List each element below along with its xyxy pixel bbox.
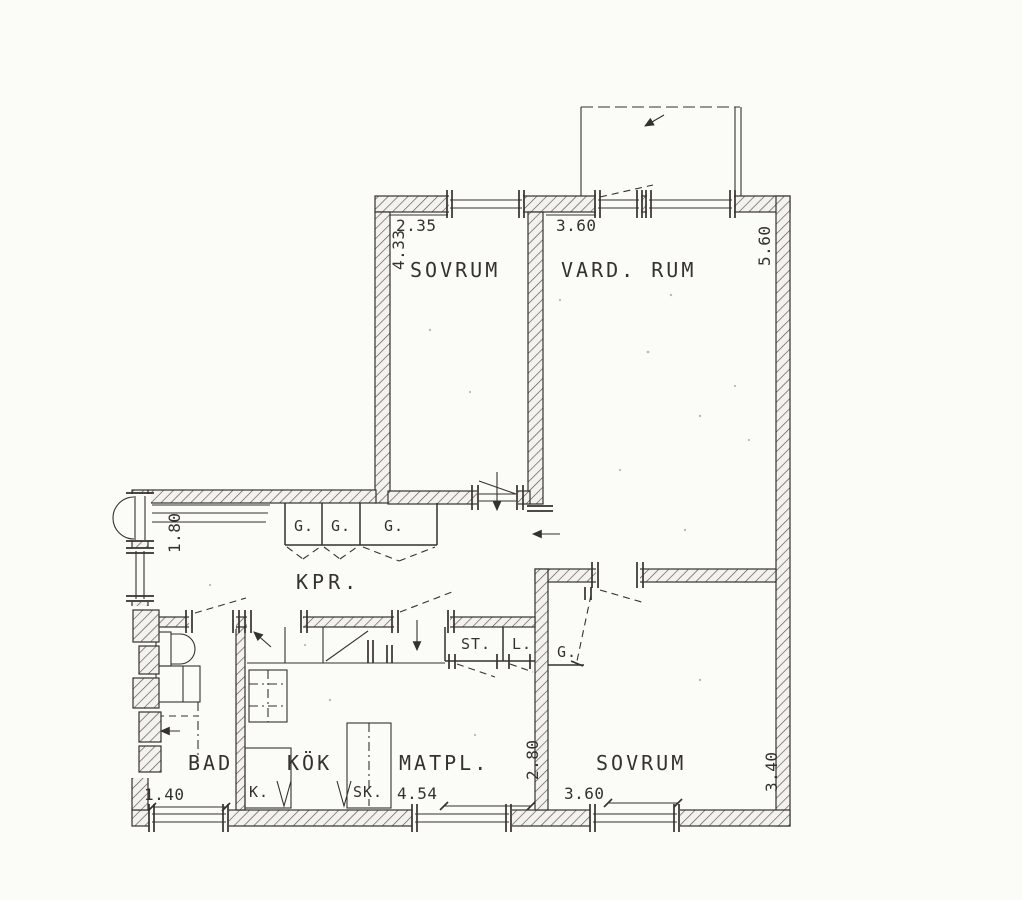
cleaning-closet-label: ST.	[461, 635, 491, 653]
wall-bedroom1-left	[375, 212, 390, 503]
dim-vardagsrum-depth: 5.60	[755, 225, 774, 266]
shaft-box	[139, 746, 161, 772]
dim-matplats-depth: 2.80	[523, 739, 542, 780]
wall-livingroom-bedroom2	[535, 569, 776, 582]
room-label-sovrum-lower: SOVRUM	[596, 751, 686, 775]
gap-door-bedroom2	[596, 567, 640, 584]
gap-window-bedroom2	[590, 809, 680, 827]
closet-label: G.	[294, 517, 314, 535]
wall-bad-right	[236, 627, 245, 810]
linen-closet-label: L.	[512, 635, 532, 653]
dim-kok-matplats-width: 4.54	[397, 784, 438, 803]
dim-sovrum-top-depth: 4.33	[389, 229, 408, 270]
fridge-label: K.	[249, 783, 269, 801]
shaft-box	[139, 646, 159, 674]
gap-door-kok	[247, 615, 303, 629]
bedroom-closet-label: G.	[557, 643, 577, 661]
dim-sovrum-lower-depth: 3.40	[762, 751, 781, 792]
gap-window-hall	[129, 548, 151, 602]
gap-window-bedroom1	[449, 193, 523, 214]
dim-hall-entry: 1.80	[165, 512, 184, 553]
dim-bad-width: 1.40	[144, 785, 185, 804]
gap-window-livingroom	[647, 193, 734, 214]
gap-window-matplats	[412, 809, 512, 827]
gap-door-matplats	[394, 615, 450, 629]
shaft-box	[139, 712, 161, 742]
gap-door-bad	[189, 615, 236, 629]
closet-label: G.	[331, 517, 351, 535]
pantry-label: SK.	[353, 783, 383, 801]
closet-label: G.	[384, 517, 404, 535]
gap-window-bad	[149, 809, 229, 827]
room-label-bad: BAD	[188, 751, 233, 775]
dim-sovrum-lower-width: 3.60	[564, 784, 605, 803]
room-label-matplats: MATPL.	[399, 751, 489, 775]
dim-vardagsrum-width: 3.60	[556, 216, 597, 235]
room-label-sovrum-top: SOVRUM	[410, 258, 500, 282]
shaft-box	[133, 610, 159, 642]
shaft-box	[133, 678, 159, 708]
wall-hall-top	[148, 490, 376, 503]
room-label-vardagsrum: VARD. RUM	[561, 258, 696, 282]
room-label-hall: KPR.	[296, 570, 360, 594]
wall-right	[776, 196, 790, 826]
gap-entry-door	[129, 494, 151, 541]
room-label-kok: KÖK	[287, 751, 332, 775]
floor-plan-drawing: G. G. G. ST. L. G.	[0, 0, 1022, 900]
wall-bedroom1-livingroom	[528, 212, 543, 504]
scanned-floor-plan: G. G. G. ST. L. G.	[0, 0, 1022, 900]
